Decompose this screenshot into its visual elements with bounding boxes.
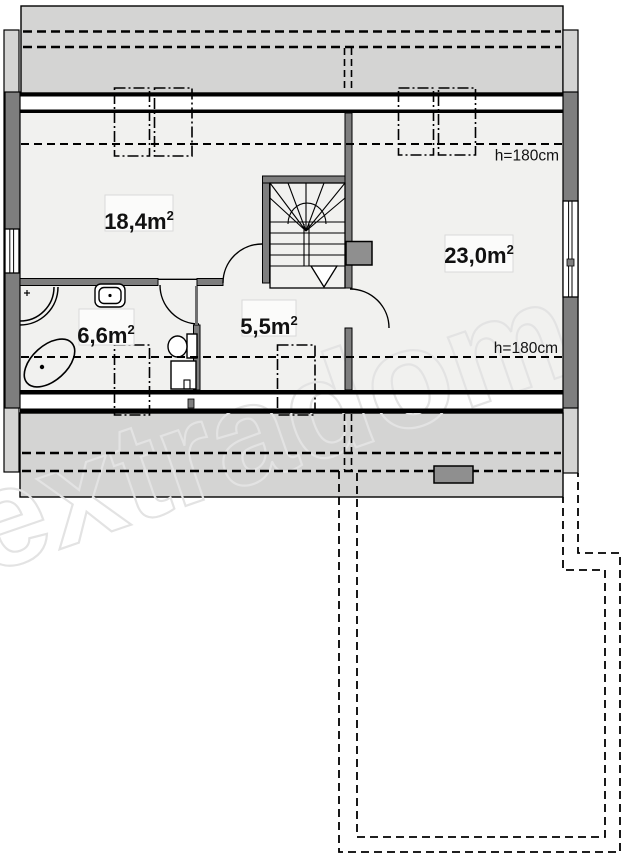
ceiling-height-label-bottom: h=180cm	[494, 340, 558, 357]
svg-text:6,6m2: 6,6m2	[77, 322, 134, 348]
window-left	[5, 229, 19, 273]
wall-stub-hall	[197, 279, 223, 286]
wall-stair-top	[263, 176, 346, 183]
eaves-band-top	[21, 6, 563, 93]
toilet	[168, 334, 197, 358]
ceiling-height-label-top: h=180cm	[495, 148, 559, 165]
lower-level-inner	[357, 473, 605, 837]
chimney-block	[346, 242, 372, 266]
wall-stair-left	[263, 176, 270, 283]
window-right	[563, 201, 578, 297]
svg-text:23,0m2: 23,0m2	[444, 242, 514, 268]
floor-plan-page: extradom	[0, 0, 623, 860]
room-label-6-6: 6,6m2	[77, 309, 134, 348]
room-label-18-4: 18,4m2	[104, 195, 174, 234]
washing-machine	[171, 361, 196, 389]
roof-chimney-block	[434, 466, 473, 483]
svg-text:5,5m2: 5,5m2	[240, 313, 297, 339]
wall-bathroom-top	[20, 279, 158, 286]
window-mullion-mark	[567, 259, 574, 266]
wall-partition-lower	[345, 328, 352, 390]
floor-plan-drawing: extradom	[0, 0, 623, 860]
room-label-5-5: 5,5m2	[240, 300, 297, 339]
lower-level-outline	[339, 471, 620, 852]
lower-level-outer	[339, 471, 620, 852]
sink	[95, 284, 125, 307]
wall-post-detail	[188, 399, 194, 408]
room-label-23-0: 23,0m2	[444, 235, 514, 272]
svg-text:18,4m2: 18,4m2	[104, 208, 174, 234]
